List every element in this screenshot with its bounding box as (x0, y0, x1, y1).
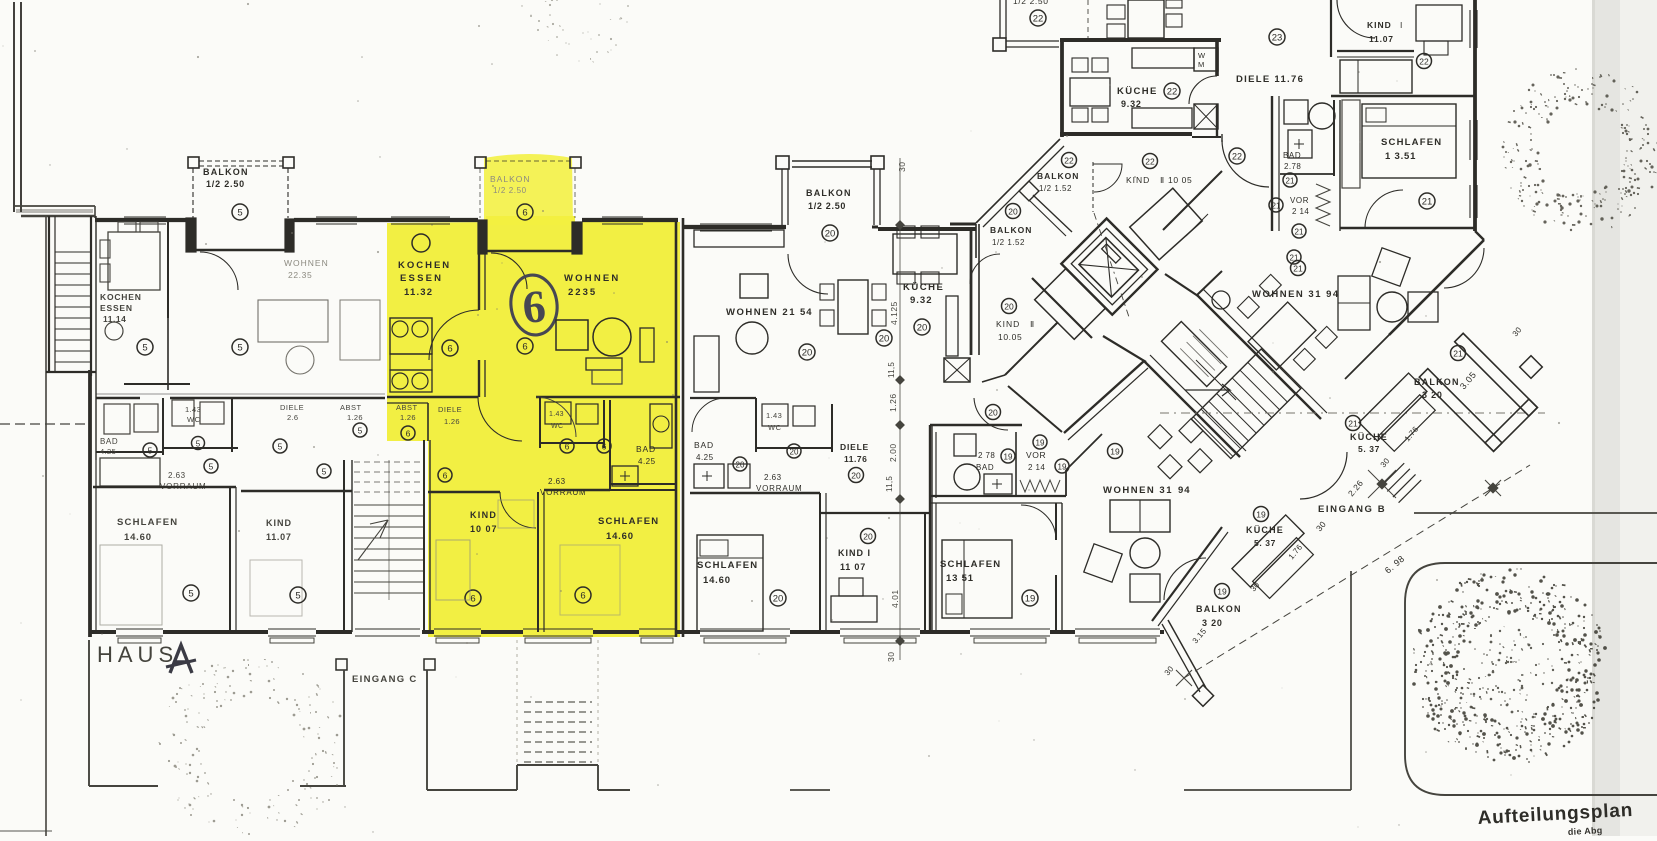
svg-text:19: 19 (1036, 438, 1045, 447)
svg-text:11.32: 11.32 (404, 287, 433, 298)
svg-text:VOR: VOR (1290, 196, 1309, 205)
svg-text:22.35: 22.35 (288, 270, 312, 280)
svg-text:19: 19 (1110, 446, 1120, 456)
svg-text:20: 20 (917, 322, 928, 333)
svg-text:SCHLAFEN: SCHLAFEN (940, 559, 1001, 570)
svg-text:BAD: BAD (636, 444, 656, 454)
svg-text:6: 6 (580, 590, 585, 601)
svg-text:5: 5 (148, 445, 153, 455)
svg-text:BALKON: BALKON (1037, 171, 1079, 181)
svg-text:4.125: 4.125 (889, 301, 899, 325)
svg-text:WOHNEN 31 94: WOHNEN 31 94 (1252, 289, 1340, 300)
svg-text:KÜCHE: KÜCHE (903, 282, 944, 293)
svg-text:6: 6 (565, 441, 570, 451)
svg-text:1.26: 1.26 (347, 413, 363, 422)
svg-text:SCHLAFEN: SCHLAFEN (1381, 137, 1442, 148)
svg-text:22: 22 (1064, 155, 1074, 165)
svg-text:DIELE: DIELE (438, 405, 462, 414)
svg-text:2.63: 2.63 (548, 477, 566, 486)
svg-text:20: 20 (802, 347, 813, 358)
svg-text:WC: WC (551, 423, 563, 430)
svg-text:11,5: 11,5 (885, 476, 894, 492)
svg-text:ESSEN: ESSEN (100, 303, 133, 313)
svg-text:1/2 2.50: 1/2 2.50 (493, 186, 527, 195)
svg-text:2.78: 2.78 (1284, 162, 1301, 171)
svg-text:Ⅱ: Ⅱ (1030, 319, 1034, 329)
svg-text:2.63: 2.63 (764, 473, 782, 482)
svg-text:6: 6 (443, 470, 448, 480)
svg-text:14.60: 14.60 (606, 531, 634, 542)
svg-text:1.43: 1.43 (549, 411, 564, 418)
svg-text:1.43: 1.43 (766, 411, 782, 420)
svg-text:Ⅱ: Ⅱ (1160, 175, 1164, 185)
svg-text:BALKON: BALKON (203, 167, 249, 177)
svg-text:20: 20 (879, 333, 890, 344)
svg-text:21: 21 (1286, 176, 1295, 185)
svg-text:DIELE: DIELE (280, 403, 304, 412)
svg-text:EINGANG C: EINGANG C (352, 674, 418, 685)
svg-text:2.63: 2.63 (168, 471, 186, 480)
svg-text:14.60: 14.60 (124, 532, 152, 543)
svg-text:5: 5 (358, 425, 363, 435)
svg-text:30: 30 (897, 162, 907, 172)
svg-text:5: 5 (196, 439, 201, 448)
svg-text:5. 37: 5. 37 (1358, 444, 1380, 454)
svg-text:19: 19 (1217, 586, 1227, 596)
svg-text:10 07: 10 07 (470, 524, 498, 534)
svg-text:4.25: 4.25 (100, 447, 116, 456)
svg-text:VORRAUM: VORRAUM (756, 484, 803, 493)
svg-text:13 51: 13 51 (946, 573, 974, 584)
svg-text:6: 6 (470, 593, 475, 604)
svg-text:1/2 1.52: 1/2 1.52 (1039, 184, 1072, 193)
svg-text:BALKON: BALKON (806, 188, 852, 198)
svg-text:KÜCHE: KÜCHE (1246, 525, 1284, 535)
svg-text:1.26: 1.26 (444, 417, 460, 426)
svg-text:20: 20 (851, 470, 861, 480)
svg-text:4.25: 4.25 (638, 457, 656, 466)
svg-text:1.26: 1.26 (888, 393, 898, 412)
svg-text:11.07: 11.07 (1369, 34, 1394, 44)
svg-text:11.76: 11.76 (844, 454, 867, 464)
svg-text:11 07: 11 07 (840, 562, 866, 572)
svg-text:21: 21 (1293, 263, 1303, 273)
svg-text:WOHNEN 21: WOHNEN 21 (726, 307, 796, 318)
svg-text:22: 22 (1145, 156, 1155, 166)
svg-text:2 14: 2 14 (1292, 207, 1309, 216)
svg-text:1.43: 1.43 (185, 405, 201, 414)
svg-text:WOHNEN: WOHNEN (564, 273, 620, 284)
svg-text:5: 5 (278, 441, 283, 451)
svg-text:9.32: 9.32 (1121, 99, 1142, 109)
svg-text:KIND: KIND (470, 510, 497, 520)
svg-text:19: 19 (1256, 509, 1266, 519)
svg-text:5: 5 (237, 342, 242, 353)
svg-text:die Abg: die Abg (1568, 825, 1603, 836)
svg-text:22: 22 (1167, 86, 1178, 97)
svg-text:20: 20 (863, 531, 873, 541)
svg-text:1 3.51: 1 3.51 (1385, 151, 1416, 162)
svg-text:20: 20 (1004, 301, 1014, 311)
svg-text:KOCHEN: KOCHEN (100, 292, 142, 302)
svg-text:22: 22 (1419, 56, 1429, 66)
svg-text:9.32: 9.32 (910, 295, 933, 306)
svg-text:BAD: BAD (694, 440, 714, 450)
svg-text:5: 5 (322, 466, 327, 476)
svg-text:KÜCHE: KÜCHE (1117, 86, 1158, 97)
svg-text:1.26: 1.26 (400, 413, 416, 422)
svg-text:BAD: BAD (100, 437, 118, 446)
svg-text:VOR: VOR (1026, 450, 1046, 460)
svg-text:21: 21 (1422, 196, 1433, 207)
svg-text:1/2 2.50: 1/2 2.50 (206, 179, 245, 189)
svg-text:ABST: ABST (396, 403, 418, 412)
svg-text:2.00: 2.00 (888, 443, 898, 462)
svg-text:22: 22 (1232, 151, 1242, 161)
svg-text:22: 22 (1033, 13, 1044, 24)
svg-text:94: 94 (1178, 485, 1191, 496)
svg-text:4.25: 4.25 (696, 453, 714, 462)
svg-text:BALKON: BALKON (490, 174, 531, 184)
svg-text:6: 6 (522, 207, 527, 218)
svg-text:BALKON: BALKON (990, 225, 1032, 235)
svg-text:10.05: 10.05 (998, 332, 1022, 342)
svg-text:6: 6 (447, 343, 452, 354)
svg-text:I: I (1400, 20, 1402, 30)
svg-text:DIELE 11.76: DIELE 11.76 (1236, 74, 1304, 85)
svg-text:6: 6 (602, 441, 607, 451)
svg-text:11,5: 11,5 (887, 362, 896, 378)
svg-text:4.01: 4.01 (890, 589, 900, 608)
svg-text:6: 6 (406, 428, 411, 438)
svg-text:2235: 2235 (568, 287, 597, 298)
svg-text:ABST: ABST (340, 403, 362, 412)
svg-text:ESSEN: ESSEN (400, 273, 443, 284)
svg-text:6: 6 (522, 341, 527, 352)
svg-text:M: M (1198, 60, 1205, 69)
svg-text:SCHLAFEN: SCHLAFEN (697, 560, 758, 571)
svg-text:19: 19 (1025, 593, 1036, 604)
svg-text:WOHNEN 31: WOHNEN 31 (1103, 485, 1173, 496)
svg-text:KIND I: KIND I (838, 548, 871, 558)
svg-text:20: 20 (773, 593, 784, 604)
svg-text:2.6: 2.6 (287, 413, 298, 422)
svg-text:W: W (1198, 51, 1206, 60)
svg-text:5: 5 (209, 461, 214, 471)
svg-text:5: 5 (142, 342, 147, 353)
svg-text:30: 30 (886, 652, 896, 662)
svg-text:14.60: 14.60 (703, 575, 731, 586)
svg-text:6: 6 (521, 280, 548, 332)
svg-text:5. 37: 5. 37 (1254, 538, 1276, 548)
svg-text:KIND: KIND (266, 518, 292, 528)
svg-text:SCHLAFEN: SCHLAFEN (117, 517, 178, 528)
svg-text:20: 20 (736, 460, 745, 469)
svg-text:10 05: 10 05 (1168, 175, 1192, 185)
svg-text:1/2 2.50: 1/2 2.50 (1013, 0, 1049, 6)
svg-text:HAUS: HAUS (97, 642, 178, 667)
svg-text:WOHNEN: WOHNEN (284, 258, 329, 268)
svg-text:54: 54 (800, 307, 813, 318)
svg-text:EINGANG B: EINGANG B (1318, 504, 1386, 515)
svg-text:KOCHEN: KOCHEN (398, 260, 451, 271)
svg-text:21: 21 (1272, 201, 1281, 210)
svg-text:5: 5 (237, 207, 242, 218)
svg-text:21: 21 (1453, 348, 1463, 358)
svg-text:2 14: 2 14 (1028, 463, 1045, 472)
svg-text:23: 23 (1272, 32, 1283, 43)
svg-text:20: 20 (1008, 206, 1018, 216)
svg-text:BAD: BAD (976, 463, 994, 472)
svg-text:BALKON: BALKON (1196, 604, 1242, 614)
svg-text:19: 19 (1004, 452, 1013, 461)
svg-text:1/2 2.50: 1/2 2.50 (808, 201, 846, 211)
svg-text:KIND: KIND (1126, 175, 1150, 185)
svg-text:21: 21 (1348, 418, 1358, 428)
svg-text:1/2 1.52: 1/2 1.52 (992, 238, 1025, 247)
svg-text:3 20: 3 20 (1202, 618, 1223, 628)
svg-text:DIELE: DIELE (840, 442, 869, 452)
svg-text:20: 20 (825, 228, 836, 239)
svg-text:20: 20 (988, 407, 998, 417)
svg-text:5: 5 (188, 588, 193, 599)
svg-text:11.07: 11.07 (266, 532, 292, 542)
svg-text:21: 21 (1295, 227, 1304, 236)
svg-text:WC: WC (768, 423, 782, 432)
svg-text:SCHLAFEN: SCHLAFEN (598, 516, 659, 527)
svg-text:BAD: BAD (1283, 151, 1301, 160)
svg-text:KIND: KIND (996, 319, 1020, 329)
svg-text:KIND: KIND (1367, 20, 1392, 30)
svg-text:20: 20 (790, 447, 799, 456)
svg-text:3 20: 3 20 (1422, 390, 1443, 400)
svg-text:2 78: 2 78 (978, 451, 995, 460)
svg-text:5: 5 (295, 590, 300, 601)
